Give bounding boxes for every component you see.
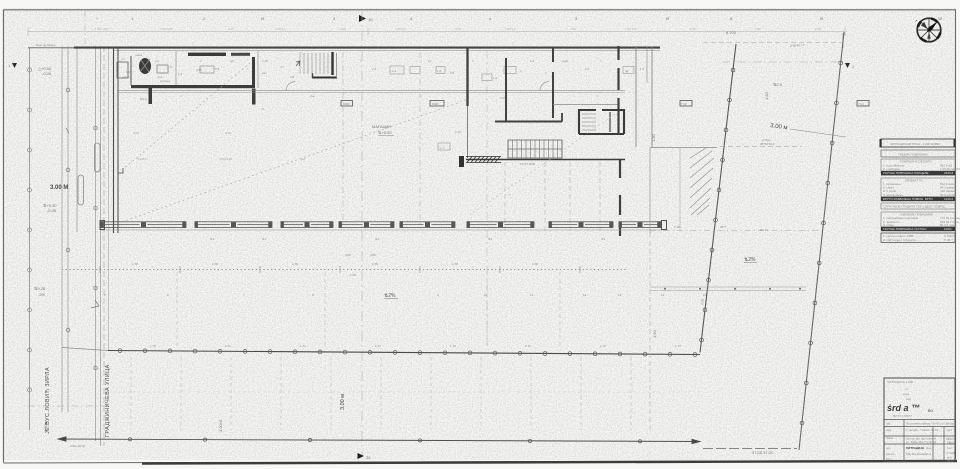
svg-text:1.50 2.2: 1.50 2.2 [395, 27, 406, 31]
svg-text:1.73: 1.73 [675, 344, 681, 348]
svg-text:шанк: шанк [135, 53, 143, 57]
svg-text:3.15: 3.15 [228, 27, 234, 31]
svg-text:1.70: 1.70 [150, 344, 156, 348]
svg-text:-2%: -2% [38, 292, 46, 297]
svg-text:1.2: 1.2 [530, 59, 535, 63]
svg-text:кас: кас [262, 71, 267, 75]
svg-text:10: 10 [938, 17, 942, 21]
svg-text:тер: тер [310, 94, 315, 98]
svg-text:100R: 100R [343, 102, 351, 106]
svg-text:⇅2%: ⇅2% [744, 257, 756, 263]
svg-text:3.55: 3.55 [196, 68, 202, 72]
svg-text:□: □ [472, 59, 474, 63]
svg-text:СПРАТНИЈЕ ГРАДИТИ ТЕК У ДЕЛУ: СПРАТНИЈЕ ГРАДИТИ ТЕК У ДЕЛУ ПОВРШ. [883, 205, 946, 209]
svg-text:архит. студио: архит. студио [893, 414, 912, 418]
svg-text:Мај Милошевић а: Мај Милошевић а [906, 452, 931, 456]
svg-text:3,00±5: 3,00±5 [218, 419, 223, 432]
svg-text:460R: 460R [432, 102, 440, 106]
svg-text:ТАБЕЛА ПОВРШИНА: ТАБЕЛА ПОВРШИНА [898, 153, 928, 157]
svg-text:лист: лист [946, 428, 953, 432]
svg-text:1.78: 1.78 [452, 262, 458, 266]
svg-text:3.00 M: 3.00 M [50, 185, 68, 191]
svg-text:□: □ [600, 59, 602, 63]
svg-text:□п: □п [121, 57, 125, 61]
svg-text:пр: пр [625, 69, 629, 73]
svg-text:⇅1: ⇅1 [488, 237, 493, 241]
svg-text:1.72: 1.72 [600, 344, 606, 348]
svg-text:11: 11 [530, 293, 533, 297]
svg-text:ГРАДЖИНИЧЕВА УЛИЦА: ГРАДЖИНИЧЕВА УЛИЦА [105, 364, 111, 437]
svg-text:Пословни објекат По+П1 ул.Беої: Пословни објекат По+П1 ул.Беоїја [906, 422, 955, 426]
svg-text:обј.: обј. [886, 422, 891, 426]
svg-text:4.05: 4.05 [570, 27, 576, 31]
svg-text:Т.16: Т.16 [674, 225, 680, 229]
svg-text:бр.л.: бр.л. [886, 457, 893, 461]
svg-text:12: 12 [583, 293, 587, 297]
svg-text:МАГАЦИН: МАГАЦИН [372, 124, 391, 129]
svg-text:⇅1: ⇅1 [210, 237, 215, 241]
svg-text:СИТУАЦИЈА 1:200: СИТУАЦИЈА 1:200 [887, 380, 913, 384]
svg-text:4.05: 4.05 [370, 253, 376, 257]
svg-text:ул. Бабе Мил Чуприја: ул. Бабе Мил Чуприја [906, 440, 937, 444]
svg-text:8.700: 8.700 [726, 30, 737, 35]
svg-text:0.25: 0.25 [455, 130, 461, 134]
svg-text:+0.00: +0.00 [122, 75, 130, 79]
svg-text:14: 14 [661, 293, 665, 297]
svg-text:Г. пеојав - Гранит бр 51: Г. пеојав - Гранит бр 51 [906, 428, 939, 432]
svg-text:1.80: 1.80 [755, 27, 761, 31]
svg-text:во: во [928, 408, 933, 413]
svg-text:⇅0.2: ⇅0.2 [140, 97, 147, 101]
svg-text:ОБЈЕКАТ П1: ОБЈЕКАТ П1 [905, 179, 923, 183]
svg-text:Γ02: Γ02 [682, 102, 687, 106]
svg-text:2.15: 2.15 [690, 27, 696, 31]
svg-text:-0.05: -0.05 [42, 71, 52, 76]
svg-text:⇅1: ⇅1 [262, 237, 267, 241]
svg-text:Ɵ: Ɵ [820, 16, 823, 21]
svg-text:↗: ↗ [915, 19, 918, 23]
svg-text:род: род [906, 397, 911, 401]
svg-text:Е3 12: Е3 12 [760, 228, 768, 232]
svg-text:Ɵ: Ɵ [666, 16, 669, 21]
svg-text:Брег.др.Мирој: Брег.др.Мирој [36, 43, 56, 47]
svg-text:ост: ост [230, 59, 235, 63]
svg-text:кухиња: кухиња [160, 79, 170, 83]
svg-text:УКУПНА ПОВРШИНА ПАРЦЕЛЕ: УКУПНА ПОВРШИНА ПАРЦЕЛЕ [883, 171, 929, 175]
svg-text:гард: гард [562, 59, 568, 63]
svg-text:3.00 м: 3.00 м [340, 394, 346, 410]
svg-text:фаза: фаза [886, 436, 893, 440]
svg-text:Ɵ: Ɵ [261, 16, 264, 21]
svg-text:2.2: 2.2 [392, 69, 397, 73]
svg-text:□: □ [420, 94, 422, 98]
svg-text:3.5: 3.5 [215, 67, 220, 71]
svg-text:□: □ [180, 94, 182, 98]
svg-text:мод: мод [926, 446, 932, 450]
svg-text:0.8: 0.8 [450, 71, 455, 75]
svg-text:1.70: 1.70 [450, 344, 456, 348]
svg-text:2.4: 2.4 [372, 67, 377, 71]
svg-text:□: □ [596, 94, 598, 98]
svg-text:3.425 С: 3.425 С [137, 157, 148, 161]
svg-text:1.9: 1.9 [178, 72, 183, 76]
svg-text:1.50: 1.50 [651, 133, 656, 142]
svg-text:⇅9.28: ⇅9.28 [34, 286, 46, 291]
svg-text:3.30: 3.30 [455, 27, 461, 31]
svg-text:1.71: 1.71 [525, 344, 531, 348]
svg-text:⇅+0.00: ⇅+0.00 [378, 130, 392, 135]
svg-text:4.05х3.95: 4.05х3.95 [219, 157, 233, 161]
svg-text:1еп: 1еп [947, 446, 952, 450]
svg-text:1.50 1.20: 1.50 1.20 [160, 27, 173, 31]
svg-text:1.78: 1.78 [292, 262, 298, 266]
svg-text:ст.2: ст.2 [440, 146, 445, 150]
svg-text:□: □ [360, 59, 362, 63]
svg-text:⇅2.5: ⇅2.5 [773, 82, 783, 87]
svg-text:ЈЕ.ВУС.ЛОВИЋ 3ИРЛА: ЈЕ.ВУС.ЛОВИЋ 3ИРЛА [45, 367, 51, 434]
svg-text:□: □ [246, 67, 248, 71]
svg-text:10: 10 [368, 17, 373, 22]
svg-text:□: □ [200, 59, 202, 63]
svg-text:СИТУАЦИЈА: СИТУАЦИЈА [906, 446, 925, 450]
svg-text:п ј: п ј [905, 387, 908, 391]
svg-text:конк: конк [903, 392, 910, 396]
svg-text:1.78: 1.78 [372, 262, 378, 266]
svg-text:□: □ [520, 69, 522, 73]
svg-text:0.25: 0.25 [133, 131, 139, 135]
svg-text:сл: сл [428, 59, 432, 63]
svg-text:2.2: 2.2 [585, 67, 590, 71]
svg-text:ПОВРШИНЕ ОБЈЕКТА: ПОВРШИНЕ ОБЈЕКТА [900, 160, 932, 164]
svg-text:св.п.: св.п. [947, 459, 954, 463]
svg-text:2.08+35.00: 2.08+35.00 [70, 444, 85, 448]
svg-text:1.50 2.80: 1.50 2.80 [95, 27, 108, 31]
svg-text:1.35 2.0: 1.35 2.0 [625, 27, 636, 31]
svg-text:4.05: 4.05 [340, 27, 346, 31]
svg-text:1.20: 1.20 [350, 273, 356, 277]
svg-text:100%: 100% [944, 227, 952, 231]
svg-text:37.08 37.0С: 37.08 37.0С [752, 450, 774, 455]
svg-text:13: 13 [618, 293, 622, 297]
svg-text:Γ03: Γ03 [859, 102, 864, 106]
svg-text:1.15: 1.15 [262, 59, 268, 63]
svg-text:17x17.6/28: 17x17.6/28 [520, 162, 535, 166]
svg-text:□: □ [545, 71, 547, 75]
svg-text:ṡrd a ™: ṡrd a ™ [887, 403, 920, 413]
svg-text:⇅2%: ⇅2% [384, 293, 396, 299]
svg-text:датум: датум [886, 452, 894, 456]
svg-text:1640.6: 1640.6 [944, 197, 954, 201]
svg-text:⇅1: ⇅1 [601, 237, 606, 241]
svg-text:38°50'30.4": 38°50'30.4" [760, 142, 775, 146]
svg-text:МБО: МБО [947, 441, 954, 445]
svg-text:28 Т: 28 Т [720, 225, 726, 229]
svg-text:1.50: 1.50 [652, 329, 657, 338]
svg-text:22: 22 [366, 455, 371, 460]
svg-text:инв.: инв. [886, 428, 892, 432]
svg-text:2.80 1.4: 2.80 1.4 [505, 27, 516, 31]
svg-text:⇅1: ⇅1 [375, 237, 380, 241]
svg-text:1.2: 1.2 [493, 76, 498, 80]
svg-text:1.0: 1.0 [640, 67, 645, 71]
svg-text:□□: □□ [280, 65, 284, 69]
svg-text:1.8: 1.8 [437, 69, 442, 73]
svg-text:П.45 Т: П.45 Т [944, 238, 953, 242]
svg-text:1.73: 1.73 [375, 344, 381, 348]
svg-text:1:200: 1:200 [947, 451, 955, 455]
svg-text:црт.: црт. [886, 446, 891, 450]
svg-text:2. СЕП орјент Објеката .......: 2. СЕП орјент Објеката .......... [883, 238, 925, 242]
svg-text:2.40 1.1: 2.40 1.1 [275, 27, 286, 31]
svg-text:2630.8: 2630.8 [944, 171, 954, 175]
svg-text:БРУТО РАЗВИЈЕНА ПОВРШ. БРГИ: БРУТО РАЗВИЈЕНА ПОВРШ. БРГИ [883, 197, 933, 201]
svg-text:1.72: 1.72 [300, 344, 306, 348]
svg-text:0.9: 0.9 [290, 75, 295, 79]
svg-text:-0.05: -0.05 [47, 208, 57, 213]
svg-text:УКУПНА ПОВРШИНА УКУПНО: УКУПНА ПОВРШИНА УКУПНО [883, 227, 927, 231]
svg-text:СИТУАЦИОНИ ПЛАН - 1:200 НОВИ: СИТУАЦИОНИ ПЛАН - 1:200 НОВИ [890, 142, 940, 146]
svg-text:2.08: 2.08 [700, 299, 705, 306]
svg-text:1.78: 1.78 [532, 262, 538, 266]
svg-text:1.1: 1.1 [126, 70, 131, 74]
svg-text:1.50: 1.50 [764, 91, 769, 100]
svg-text:4.05: 4.05 [345, 253, 351, 257]
svg-text:0.25: 0.25 [225, 131, 231, 135]
svg-text:2.1: 2.1 [155, 59, 160, 63]
svg-text:1.71: 1.71 [225, 344, 231, 348]
svg-text:1.78: 1.78 [212, 262, 218, 266]
svg-text:2.40: 2.40 [815, 27, 821, 31]
svg-text:1.78: 1.78 [132, 262, 138, 266]
